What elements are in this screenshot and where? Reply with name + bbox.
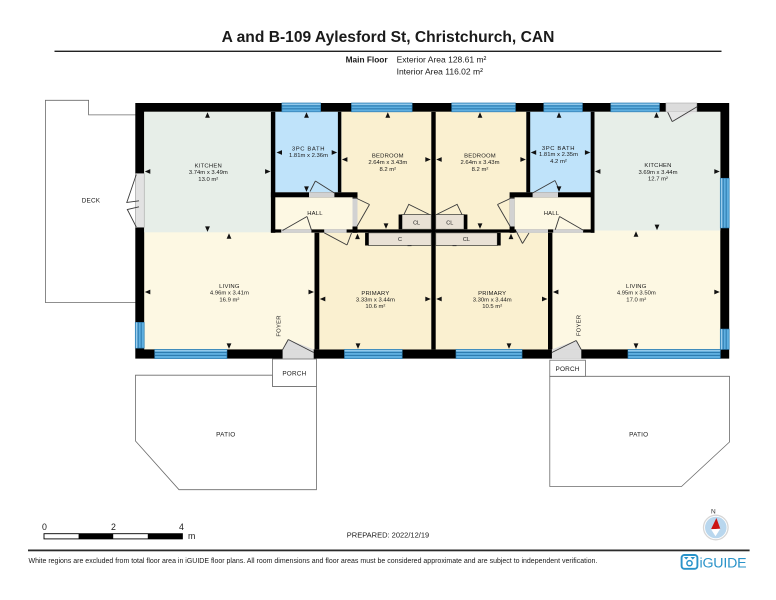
svg-text:m: m bbox=[188, 531, 195, 541]
svg-text:DECK: DECK bbox=[82, 197, 101, 204]
svg-text:10.5 m²: 10.5 m² bbox=[482, 304, 502, 310]
svg-text:PRIMARY: PRIMARY bbox=[478, 291, 506, 297]
svg-text:3.33m x 3.44m: 3.33m x 3.44m bbox=[356, 298, 395, 304]
svg-text:FOYER: FOYER bbox=[277, 315, 283, 336]
svg-text:3.74m x 3.49m: 3.74m x 3.49m bbox=[189, 170, 228, 176]
svg-text:BEDROOM: BEDROOM bbox=[464, 153, 496, 159]
svg-text:3PC BATH: 3PC BATH bbox=[542, 146, 575, 152]
svg-text:CL: CL bbox=[413, 221, 420, 227]
svg-text:A and B-109 Aylesford St, Chri: A and B-109 Aylesford St, Christchurch, … bbox=[222, 29, 555, 46]
svg-text:4.95m x 3.50m: 4.95m x 3.50m bbox=[617, 291, 656, 297]
svg-text:1.81m x 2.35m: 1.81m x 2.35m bbox=[539, 152, 578, 158]
svg-text:PORCH: PORCH bbox=[556, 366, 580, 373]
svg-text:PRIMARY: PRIMARY bbox=[361, 291, 389, 297]
svg-text:HALL: HALL bbox=[307, 211, 323, 217]
svg-text:8.2 m²: 8.2 m² bbox=[472, 167, 489, 173]
svg-text:4: 4 bbox=[179, 522, 184, 532]
svg-text:KITCHEN: KITCHEN bbox=[644, 163, 671, 169]
svg-text:4.96m x 3.41m: 4.96m x 3.41m bbox=[210, 291, 249, 297]
svg-text:N: N bbox=[711, 508, 716, 515]
svg-text:C: C bbox=[398, 237, 402, 243]
svg-text:17.0 m²: 17.0 m² bbox=[626, 297, 646, 303]
svg-text:KITCHEN: KITCHEN bbox=[195, 163, 222, 169]
svg-text:4.2 m²: 4.2 m² bbox=[550, 159, 567, 165]
svg-text:13.0 m²: 13.0 m² bbox=[198, 177, 218, 183]
svg-text:2: 2 bbox=[111, 522, 116, 532]
svg-text:3.69m x 3.44m: 3.69m x 3.44m bbox=[639, 170, 678, 176]
svg-text:2.64m x 3.43m: 2.64m x 3.43m bbox=[461, 160, 500, 166]
svg-text:3PC BATH: 3PC BATH bbox=[292, 146, 325, 152]
svg-text:12.7 m²: 12.7 m² bbox=[648, 177, 668, 183]
svg-text:0: 0 bbox=[42, 522, 47, 532]
svg-text:CL: CL bbox=[463, 237, 470, 243]
svg-text:PATIO: PATIO bbox=[629, 431, 648, 438]
svg-text:BEDROOM: BEDROOM bbox=[372, 153, 404, 159]
svg-text:LIVING: LIVING bbox=[626, 284, 647, 290]
svg-text:16.9 m²: 16.9 m² bbox=[219, 297, 239, 303]
svg-text:3.30m x 3.44m: 3.30m x 3.44m bbox=[473, 298, 512, 304]
svg-text:PATIO: PATIO bbox=[216, 431, 235, 438]
svg-text:2.64m x 3.43m: 2.64m x 3.43m bbox=[368, 160, 407, 166]
svg-text:LIVING: LIVING bbox=[219, 284, 240, 290]
svg-text:1.81m x 2.36m: 1.81m x 2.36m bbox=[289, 153, 328, 159]
svg-text:10.6 m²: 10.6 m² bbox=[365, 304, 385, 310]
svg-text:Main Floor: Main Floor bbox=[346, 55, 389, 65]
svg-text:Exterior Area 128.61 m²: Exterior Area 128.61 m² bbox=[397, 55, 487, 65]
svg-text:PORCH: PORCH bbox=[282, 370, 306, 377]
svg-text:White regions are excluded fro: White regions are excluded from total fl… bbox=[29, 558, 598, 565]
svg-text:HALL: HALL bbox=[544, 211, 560, 217]
svg-text:PREPARED: 2022/12/19: PREPARED: 2022/12/19 bbox=[347, 531, 429, 540]
svg-text:Interior Area 116.02 m²: Interior Area 116.02 m² bbox=[397, 67, 483, 77]
svg-text:8.2 m²: 8.2 m² bbox=[379, 167, 396, 173]
svg-text:iGUIDE: iGUIDE bbox=[700, 556, 747, 572]
svg-text:FOYER: FOYER bbox=[577, 315, 583, 336]
svg-text:CL: CL bbox=[446, 221, 453, 227]
